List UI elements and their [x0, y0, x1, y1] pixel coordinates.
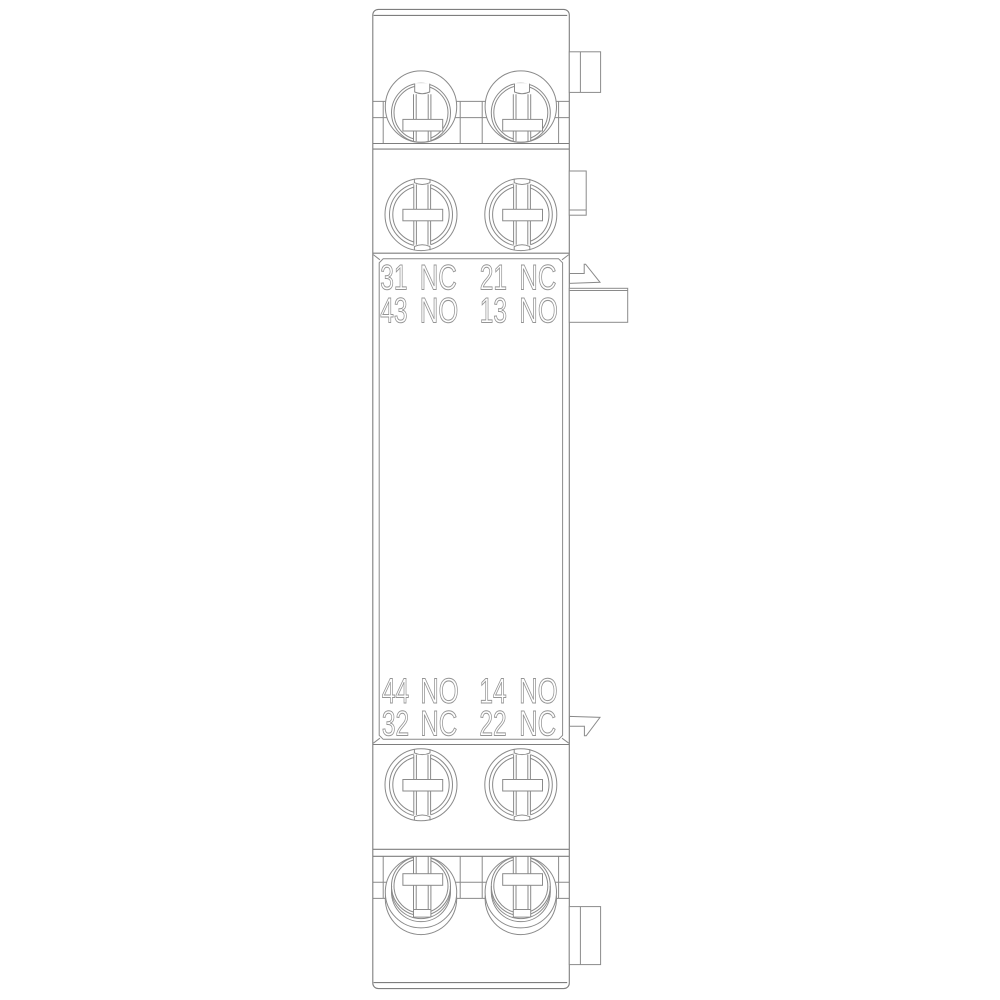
- svg-text:43: 43: [380, 292, 407, 330]
- svg-text:13: 13: [480, 292, 507, 330]
- svg-text:NO: NO: [420, 291, 459, 331]
- svg-text:NC: NC: [420, 704, 457, 744]
- svg-text:32: 32: [382, 705, 409, 743]
- svg-text:22: 22: [479, 705, 506, 743]
- svg-text:NC: NC: [519, 704, 556, 744]
- svg-text:NO: NO: [519, 291, 558, 331]
